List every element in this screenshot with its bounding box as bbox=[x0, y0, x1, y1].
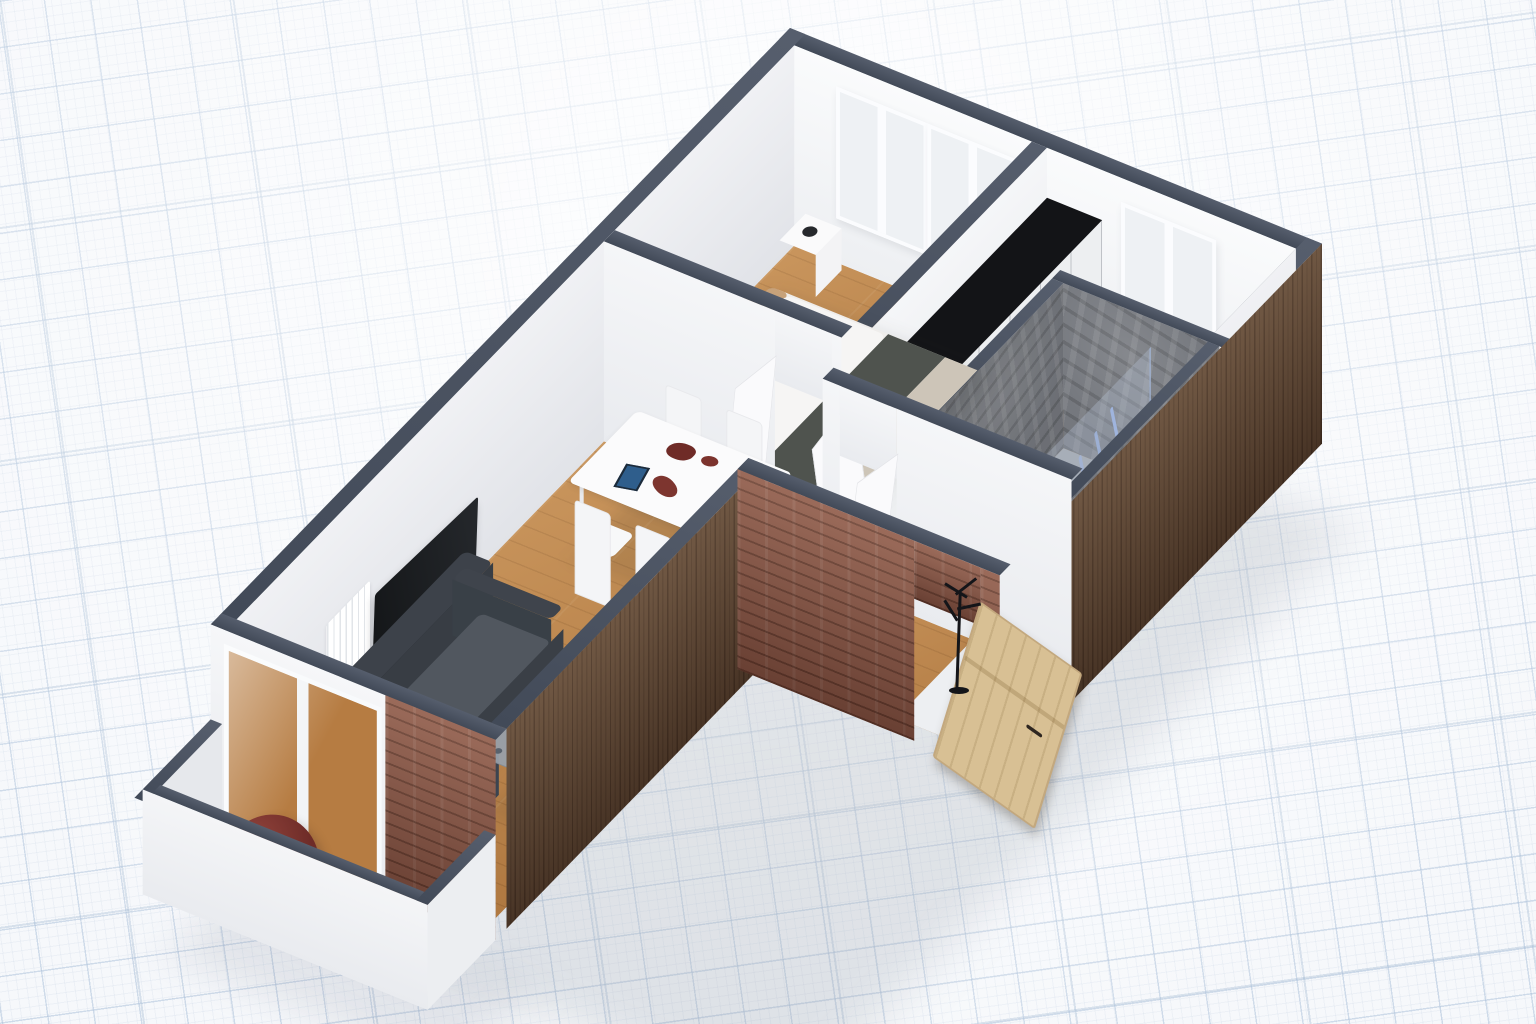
floorplan-viewport bbox=[0, 0, 1536, 1024]
detail bbox=[943, 599, 958, 621]
book[interactable] bbox=[613, 464, 650, 492]
lamp[interactable] bbox=[799, 225, 820, 239]
floorplan-3d-render bbox=[0, 0, 1536, 1024]
bowl[interactable] bbox=[698, 454, 721, 469]
door-handle[interactable] bbox=[1026, 724, 1043, 738]
teapot[interactable] bbox=[662, 439, 700, 463]
coat-rack[interactable] bbox=[937, 583, 981, 701]
dining-chair[interactable] bbox=[575, 499, 611, 608]
pastry[interactable] bbox=[648, 473, 683, 500]
detail bbox=[949, 687, 969, 694]
bedroom-window-1[interactable] bbox=[836, 86, 927, 255]
